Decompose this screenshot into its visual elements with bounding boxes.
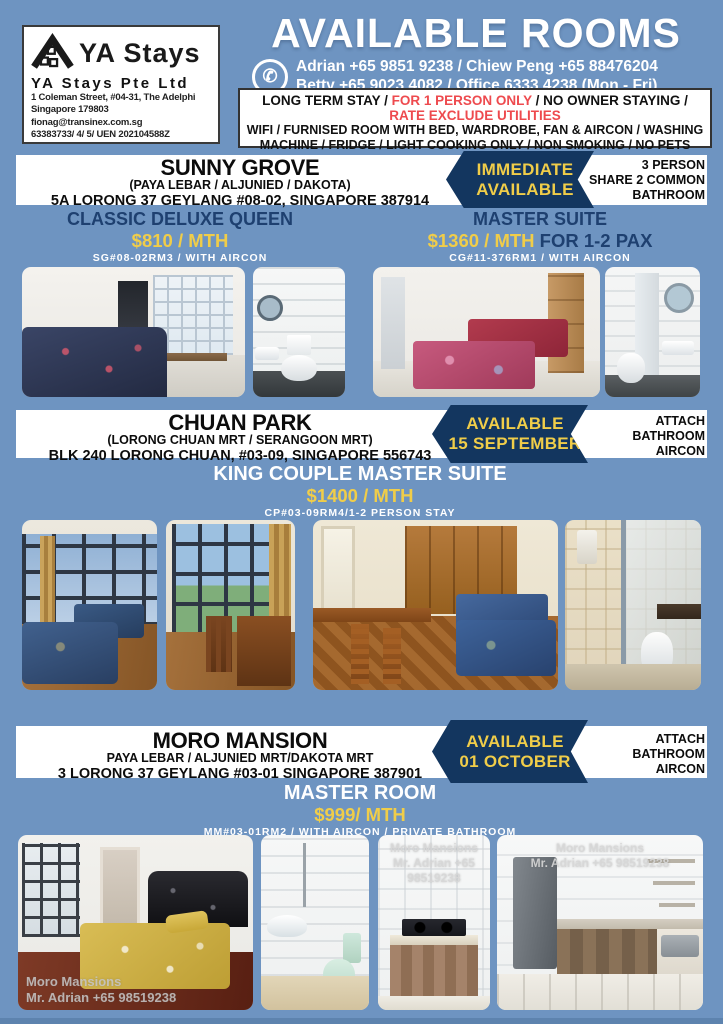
room-code: CG#11-376RM1 / WITH AIRCON <box>405 252 675 266</box>
room-name: MASTER SUITE <box>405 210 675 230</box>
rental-terms-box: LONG TERM STAY / FOR 1 PERSON ONLY / NO … <box>238 88 712 148</box>
badge-line-1: AVAILABLE <box>466 732 563 752</box>
info-line: BATHROOM <box>585 747 705 762</box>
curtain-shape <box>269 524 291 628</box>
stove-shape <box>402 919 466 936</box>
room-price: $999/ MTH <box>150 804 570 826</box>
info-line: AIRCON <box>585 444 705 459</box>
room-name: KING COUPLE MASTER SUITE <box>150 463 570 485</box>
room-price: $810 / MTH <box>55 230 305 252</box>
counter-shape <box>557 919 703 929</box>
floor-shape <box>497 974 703 1010</box>
terms-line-1: LONG TERM STAY / FOR 1 PERSON ONLY / NO … <box>240 93 710 108</box>
sink-shape <box>255 347 279 360</box>
section-address: BLK 240 LORONG CHUAN, #03-09, SINGAPORE … <box>20 448 460 464</box>
room-price: $1400 / MTH <box>150 485 570 507</box>
company-address-line1: 1 Coleman Street, #04-31, The Adelphi <box>31 92 213 104</box>
bed-shape <box>22 327 167 397</box>
brand-name: YA Stays <box>79 38 201 69</box>
photo-sunny-grove-bathroom-2 <box>605 267 700 397</box>
info-line: 3 PERSON <box>585 158 705 173</box>
watermark-line-2: Mr. Adrian +65 98519238 <box>378 856 490 886</box>
section-subtitle: (LORONG CHUAN MRT / SERANGOON MRT) <box>20 434 460 448</box>
toilet-shape <box>617 353 645 383</box>
badge-line-2: AVAILABLE <box>476 180 573 200</box>
section-title: CHUAN PARK <box>20 412 460 434</box>
company-phones-uen: 63383733/ 4/ 5/ UEN 202104588Z <box>31 129 213 141</box>
sink-shape <box>662 341 694 355</box>
availability-badge-sunny-grove: IMMEDIATE AVAILABLE <box>446 151 594 208</box>
room-price-amount: $1360 / MTH <box>428 230 535 251</box>
curtain-shape <box>40 536 55 624</box>
photo-chuan-park-bedroom <box>22 520 157 690</box>
bench-shape <box>657 604 701 619</box>
watermark-line-1: Moro Mansions <box>378 841 490 856</box>
table-shape <box>313 608 431 622</box>
sink-shape <box>267 915 307 937</box>
mirror-shape <box>257 295 283 321</box>
house-roof-logo-icon <box>31 33 77 73</box>
room-name: CLASSIC DELUXE QUEEN <box>55 210 305 230</box>
shelf-shape <box>659 903 695 907</box>
photo-sunny-grove-twin-bedroom <box>373 267 600 397</box>
section-address: 3 LORONG 37 GEYLANG #03-01 SINGAPORE 387… <box>20 766 460 782</box>
floor-shape <box>565 664 701 690</box>
room-code: CP#03-09RM4/1-2 PERSON STAY <box>150 507 570 521</box>
company-email: fionag@transinex.com.sg <box>31 117 213 129</box>
bed-shape <box>413 341 535 389</box>
badge-line-2: 01 OCTOBER <box>459 752 570 772</box>
page-title: AVAILABLE ROOMS <box>240 10 712 57</box>
bed-shape <box>22 622 118 684</box>
shower-pipe-shape <box>303 843 306 907</box>
info-line: BATHROOM <box>585 429 705 444</box>
room-name: MASTER ROOM <box>150 782 570 804</box>
section-subtitle: PAYA LEBAR / ALJUNIED MRT/DAKOTA MRT <box>20 752 460 766</box>
terms-line-1a: LONG TERM STAY / <box>262 93 392 108</box>
table-shape <box>237 616 291 686</box>
room-price: $1360 / MTH FOR 1-2 PAX <box>405 230 675 252</box>
info-line: ATTACH <box>585 414 705 429</box>
photo-watermark: Moro Mansions Mr. Adrian +65 98519238 <box>378 841 490 886</box>
info-line: BATHROOM <box>585 188 705 203</box>
info-line: SHARE 2 COMMON <box>585 173 705 188</box>
section-title: SUNNY GROVE <box>20 157 460 179</box>
terms-line-1b: FOR 1 PERSON ONLY <box>392 93 532 108</box>
terms-line-3: WIFI / FURNISED ROOM WITH BED, WARDROBE,… <box>240 123 710 137</box>
toilet-tank-shape <box>343 933 361 963</box>
terms-line-2: RATE EXCLUDE UTILITIES <box>240 108 710 123</box>
toilet-shape <box>281 355 317 381</box>
page-bottom-edge <box>0 1018 723 1024</box>
photo-moro-mansion-kitchen: Moro Mansions Mr. Adrian +65 98519238 <box>497 835 703 1010</box>
info-line: ATTACH <box>585 732 705 747</box>
cabinet-shape <box>557 929 661 975</box>
bed-shape <box>456 620 556 676</box>
watermark-line-2: Mr. Adrian +65 98519238 <box>497 856 703 871</box>
section-info-sunny-grove: 3 PERSON SHARE 2 COMMON BATHROOM <box>585 158 705 202</box>
logo-row: YA Stays <box>31 33 213 73</box>
section-header-moro-mansion: MORO MANSION PAYA LEBAR / ALJUNIED MRT/D… <box>20 730 460 782</box>
doorway-shape <box>321 526 355 612</box>
section-title: MORO MANSION <box>20 730 460 752</box>
counter-shape <box>390 935 478 945</box>
photo-chuan-park-master-room <box>313 520 558 690</box>
photo-chuan-park-balcony <box>166 520 295 690</box>
section-header-sunny-grove: SUNNY GROVE (PAYA LEBAR / ALJUNIED / DAK… <box>20 157 460 209</box>
section-subtitle: (PAYA LEBAR / ALJUNIED / DAKOTA) <box>20 179 460 193</box>
door-shape <box>381 277 405 369</box>
door-shape <box>100 847 140 927</box>
photo-watermark: Moro Mansions Mr. Adrian +65 98519238 <box>26 974 176 1007</box>
sink-shape <box>661 935 699 957</box>
badge-line-1: IMMEDIATE <box>477 160 574 180</box>
fridge-shape <box>513 857 557 969</box>
availability-badge-chuan-park: AVAILABLE 15 SEPTEMBER <box>432 405 588 463</box>
availability-badge-moro-mansion: AVAILABLE 01 OCTOBER <box>432 720 588 783</box>
room-classic-deluxe-queen: CLASSIC DELUXE QUEEN $810 / MTH SG#08-02… <box>55 210 305 266</box>
info-line: AIRCON <box>585 762 705 777</box>
photo-sunny-grove-bedroom-queen <box>22 267 245 397</box>
cabinet-shape <box>390 945 478 997</box>
section-header-chuan-park: CHUAN PARK (LORONG CHUAN MRT / SERANGOON… <box>20 412 460 464</box>
mirror-shape <box>664 283 694 313</box>
chair-shape <box>351 624 369 684</box>
photo-chuan-park-bathroom <box>565 520 701 690</box>
room-price-suffix: FOR 1-2 PAX <box>535 230 653 251</box>
chair-shape <box>383 628 401 684</box>
watermark-line-1: Moro Mansions <box>497 841 703 856</box>
floor-shape <box>378 996 490 1010</box>
room-king-couple-master-suite: KING COUPLE MASTER SUITE $1400 / MTH CP#… <box>150 463 570 521</box>
terms-line-4: MACHINE / FRIDGE / LIGHT COOKING ONLY / … <box>240 138 710 152</box>
desk-shape <box>161 353 227 361</box>
section-info-chuan-park: ATTACH BATHROOM AIRCON <box>585 414 705 458</box>
company-address-line2: Singapore 179803 <box>31 104 213 116</box>
badge-line-2: 15 SEPTEMBER <box>448 434 581 454</box>
terms-line-1c: / NO OWNER STAYING / <box>532 93 688 108</box>
room-master-suite: MASTER SUITE $1360 / MTH FOR 1-2 PAX CG#… <box>405 210 675 266</box>
window-shape <box>22 843 80 937</box>
chair-shape <box>206 616 232 672</box>
contact-line-1: Adrian +65 9851 9238 / Chiew Peng +65 88… <box>296 58 658 77</box>
water-heater-shape <box>577 530 597 564</box>
toilet-tank-shape <box>287 335 311 355</box>
watermark-line-2: Mr. Adrian +65 98519238 <box>26 990 176 1006</box>
section-address: 5A LORONG 37 GEYLANG #08-02, SINGAPORE 3… <box>20 193 460 209</box>
photo-sunny-grove-bathroom-1 <box>253 267 345 397</box>
photo-moro-mansion-kitchen-stove: Moro Mansions Mr. Adrian +65 98519238 <box>378 835 490 1010</box>
company-name: YA Stays Pte Ltd <box>31 75 213 92</box>
badge-line-1: AVAILABLE <box>466 414 563 434</box>
photo-watermark: Moro Mansions Mr. Adrian +65 98519238 <box>497 841 703 871</box>
room-master-room: MASTER ROOM $999/ MTH MM#03-01RM2 / WITH… <box>150 782 570 840</box>
room-rental-flyer: YA Stays YA Stays Pte Ltd 1 Coleman Stre… <box>0 0 723 1024</box>
section-info-moro-mansion: ATTACH BATHROOM AIRCON <box>585 732 705 776</box>
photo-moro-mansion-master-bedroom: Moro Mansions Mr. Adrian +65 98519238 <box>18 835 253 1010</box>
company-card: YA Stays YA Stays Pte Ltd 1 Coleman Stre… <box>22 25 220 144</box>
shelf-shape <box>653 881 695 885</box>
watermark-line-1: Moro Mansions <box>26 974 176 990</box>
photo-moro-mansion-bathroom <box>261 835 369 1010</box>
room-code: SG#08-02RM3 / WITH AIRCON <box>55 252 305 266</box>
floor-shape <box>261 976 369 1010</box>
